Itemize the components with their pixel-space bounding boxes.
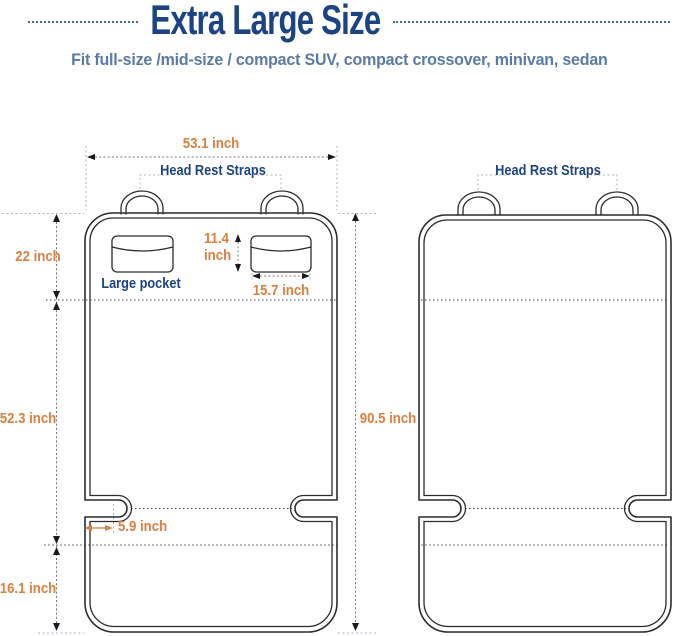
arrowhead-down	[235, 264, 241, 272]
headrest-straps-label-left-diagram: Head Rest Straps	[160, 164, 266, 180]
arrowhead-up	[53, 547, 60, 555]
arrowhead-up	[352, 213, 359, 221]
headrest-strap	[601, 197, 633, 215]
headrest-strap	[261, 191, 303, 214]
large-pocket-right	[251, 236, 311, 272]
headrest-strap	[266, 196, 298, 214]
headrest-straps-label-right-diagram: Head Rest Straps	[495, 164, 601, 180]
headrest-strap	[596, 192, 638, 215]
arrowhead-left	[87, 154, 95, 160]
large-pocket-label: Large pocket	[101, 277, 180, 293]
dim-front-drop-label: 16.1 inch	[0, 581, 56, 598]
arrowhead-down	[352, 623, 359, 631]
pocket-flap-line	[251, 247, 311, 251]
dim-pocket-width-label: 15.7 inch	[253, 283, 309, 300]
large-pocket-left	[112, 236, 173, 272]
dim-pocket-height-label: 11.4 inch	[204, 231, 231, 264]
seat-cover-outline-outer	[419, 215, 671, 632]
arrowhead-down	[53, 536, 60, 544]
size-diagram-page: Extra Large Size Fit full-size /mid-size…	[0, 0, 679, 636]
dim-width-label: 53.1 inch	[183, 136, 239, 153]
dim-seat-length-label: 52.3 inch	[0, 411, 56, 428]
arrowhead-right	[328, 154, 336, 160]
arrowhead-up	[53, 214, 60, 222]
dim-pocket-height-value: 11.4	[204, 231, 231, 248]
arrowhead-up	[53, 302, 60, 310]
dim-backrest-height-label: 22 inch	[15, 249, 60, 266]
diagram-canvas	[0, 0, 679, 636]
dim-slot-depth-label: 5.9 inch	[118, 519, 167, 536]
arrowhead-up	[235, 234, 241, 242]
headrest-strap	[463, 197, 495, 215]
headrest-strap	[458, 192, 500, 215]
arrowhead-left	[252, 273, 260, 279]
headrest-strap	[121, 191, 163, 214]
dim-pocket-height-unit: inch	[204, 248, 231, 265]
seat-cover-outline-inner	[424, 220, 666, 627]
arrowhead-down	[53, 623, 60, 631]
arrowhead-down	[53, 291, 60, 299]
dim-total-height-label: 90.5 inch	[360, 411, 416, 428]
pocket-flap-line	[112, 247, 173, 251]
arrowhead-right	[302, 273, 310, 279]
arrowhead-right	[105, 525, 113, 531]
headrest-strap	[126, 196, 158, 214]
